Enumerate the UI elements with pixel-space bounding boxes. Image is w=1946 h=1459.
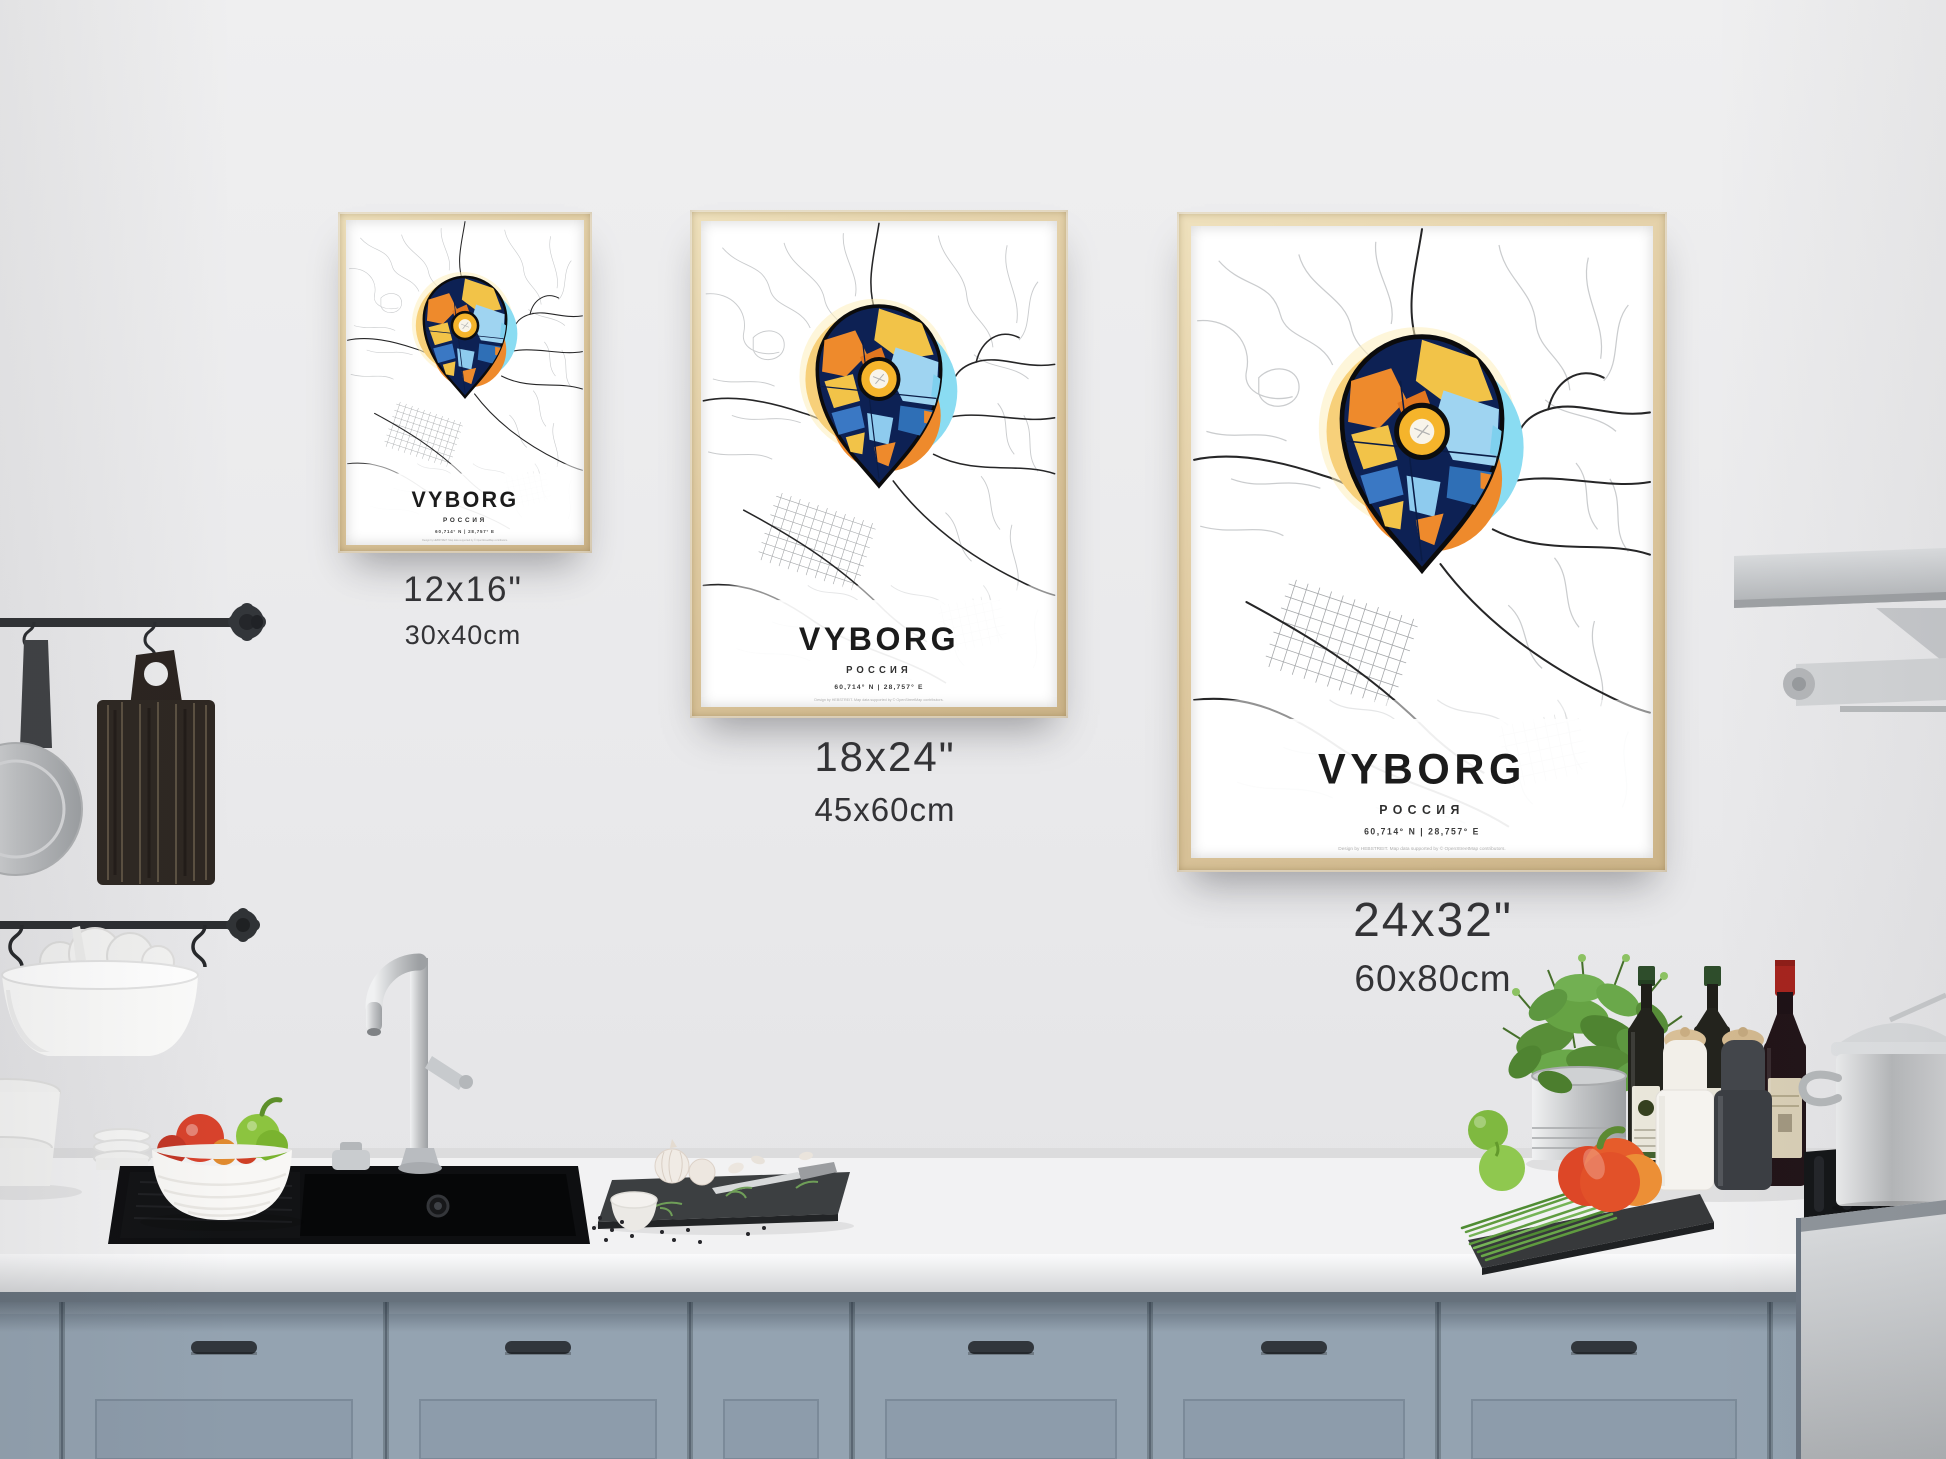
s-hook [193,925,205,967]
base-cabinets [0,1302,1946,1459]
cabinet-handle [1571,1341,1637,1355]
s-hook [10,925,22,967]
utensil-bucket [2,926,198,1056]
steel-shelf [1734,548,1946,712]
plate-stack [94,1129,150,1170]
faucet [366,958,473,1174]
stove-front [1796,1200,1946,1459]
s-hook [145,622,155,656]
cabinet-handle [968,1341,1034,1355]
pepper-grinder-black [1714,1027,1772,1190]
pan-lid [0,640,82,875]
cabinet-panels [96,1400,1736,1459]
hanging-cutting-board [97,650,215,885]
cabinet-handle [505,1341,571,1355]
kitchen-scene [0,0,1946,1459]
pepper-grinder-white [1656,1027,1714,1190]
soap-dispenser [332,1142,370,1170]
cabinet-handle [1261,1341,1327,1355]
cabinet-handle [191,1341,257,1355]
